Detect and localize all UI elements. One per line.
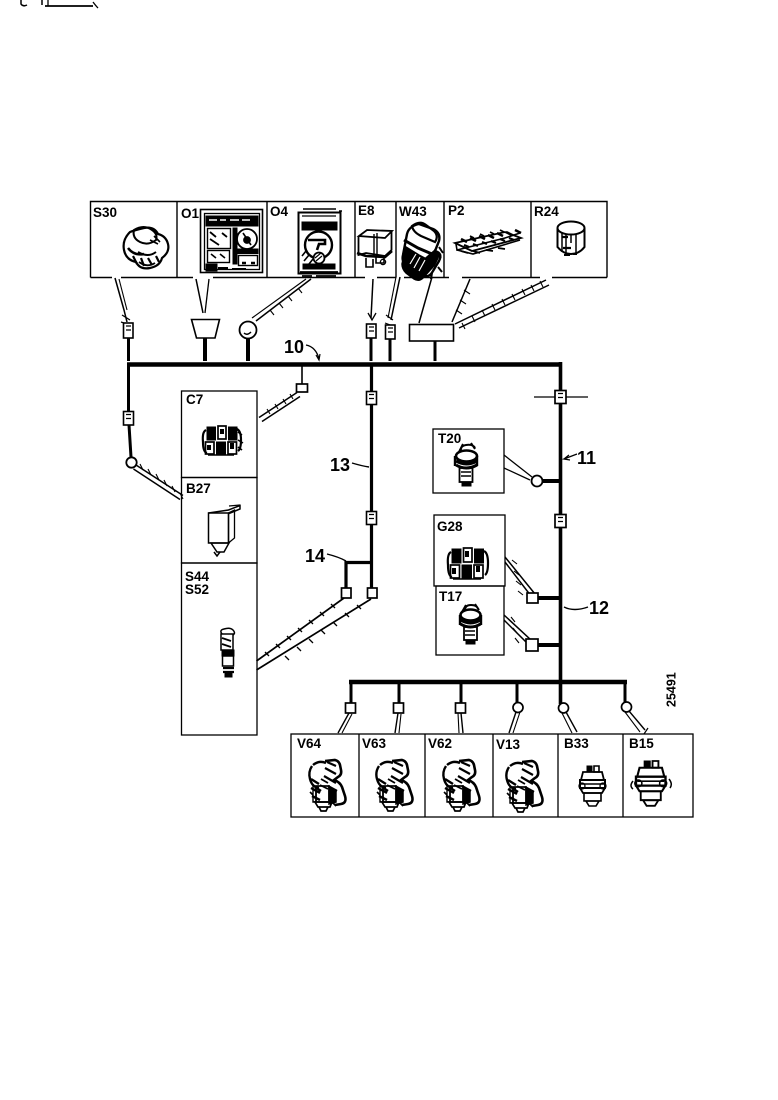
svg-text:14: 14 [305, 546, 325, 566]
svg-text:11: 11 [577, 448, 596, 468]
svg-text:P2: P2 [448, 203, 465, 218]
svg-text:V64: V64 [297, 736, 322, 751]
svg-text:B15: B15 [629, 736, 654, 751]
svg-text:T20: T20 [438, 431, 461, 446]
svg-text:V13: V13 [496, 737, 521, 752]
svg-text:O1: O1 [181, 206, 200, 221]
svg-text:R24: R24 [534, 204, 559, 219]
svg-text:G28: G28 [437, 519, 463, 534]
svg-text:C7: C7 [186, 392, 203, 407]
svg-text:O4: O4 [270, 204, 289, 219]
svg-text:B33: B33 [564, 736, 589, 751]
svg-text:V63: V63 [362, 736, 387, 751]
svg-text:S30: S30 [93, 205, 117, 220]
svg-text:25491: 25491 [665, 672, 679, 707]
svg-text:W43: W43 [399, 204, 427, 219]
svg-text:E8: E8 [358, 203, 375, 218]
svg-text:13: 13 [330, 455, 350, 475]
svg-text:B27: B27 [186, 481, 211, 496]
svg-text:S52: S52 [185, 582, 209, 597]
svg-text:V62: V62 [428, 736, 452, 751]
svg-text:12: 12 [589, 598, 609, 618]
svg-text:T17: T17 [439, 589, 462, 604]
svg-text:10: 10 [284, 337, 304, 357]
